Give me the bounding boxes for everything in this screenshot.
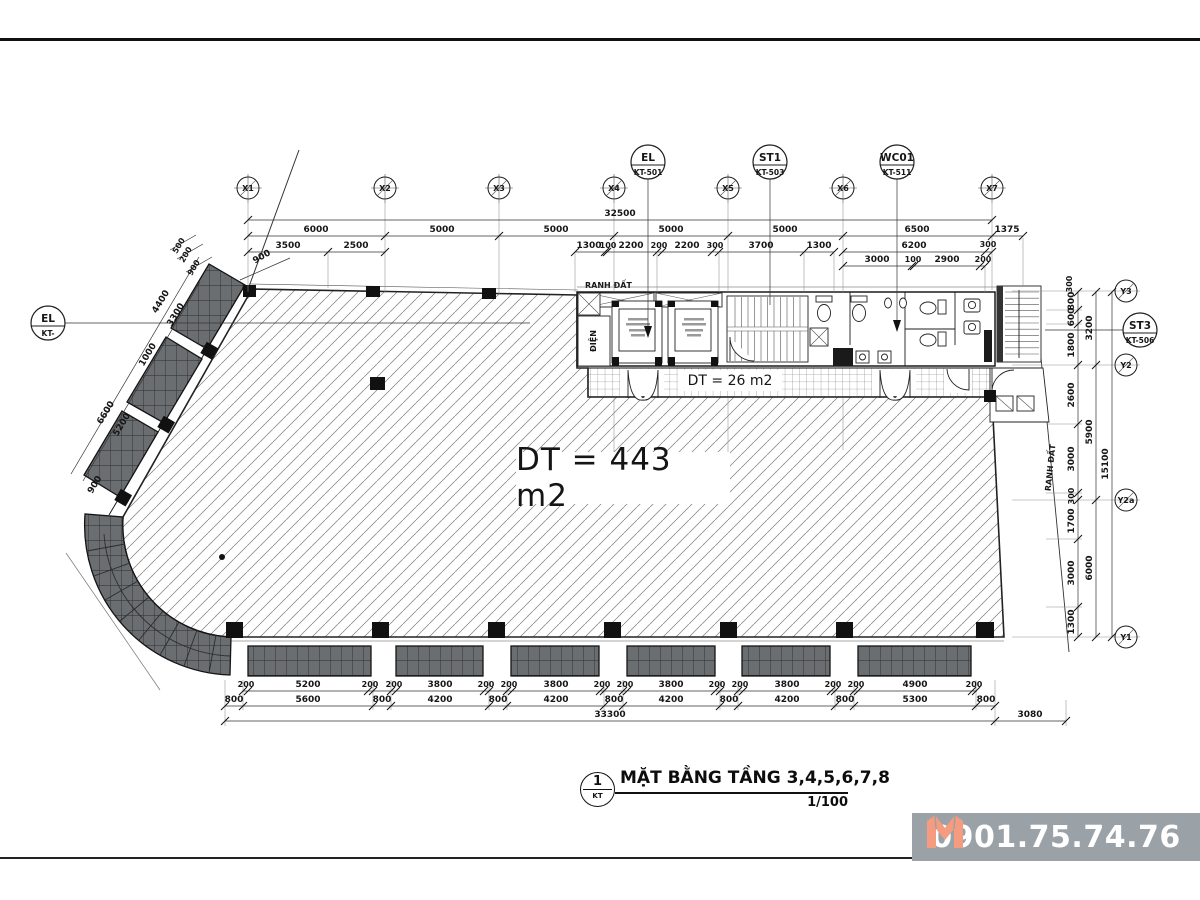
- grid-label: Y1: [1119, 633, 1132, 642]
- grid-bubble-x6: X6: [829, 174, 857, 203]
- dim-text: 800: [225, 695, 244, 705]
- dim-text: 300: [1065, 275, 1074, 292]
- dim-text: 4900: [902, 680, 927, 690]
- drawing-title: MẶT BẰNG TẦNG 3,4,5,6,7,8: [620, 768, 890, 788]
- dim-text: 3500: [275, 241, 300, 251]
- dim-text: 200: [732, 680, 749, 689]
- dim-text: 3700: [748, 241, 773, 251]
- dim-text: 5300: [902, 695, 927, 705]
- dim-text: 3000: [864, 255, 889, 265]
- dim-text: 3800: [427, 680, 452, 690]
- dim-text: 3000: [1067, 560, 1077, 585]
- dim-text: 1700: [1067, 508, 1077, 533]
- dim-text: 3200: [1085, 315, 1095, 340]
- dim-text: 2900: [934, 255, 959, 265]
- stair-st1: [727, 296, 808, 362]
- drawing-number-bubble: 1 KT: [580, 772, 615, 807]
- grid-label: X6: [837, 184, 849, 193]
- dim-text: 5000: [658, 225, 683, 235]
- contact-phone-banner[interactable]: 0901.75.74.76: [912, 813, 1200, 861]
- dim-text: 200: [975, 255, 992, 264]
- title-underline: [615, 792, 848, 794]
- dim-text: 2500: [343, 241, 368, 251]
- grid-bubble-x3: X3: [485, 174, 513, 203]
- dim-text: 5000: [772, 225, 797, 235]
- dim-text: 200: [501, 680, 518, 689]
- dim-text: 2200: [674, 241, 699, 251]
- grid-bubble-x4: X4: [600, 174, 628, 203]
- callout-name: ST1: [759, 152, 781, 164]
- dim-text: 200: [478, 680, 495, 689]
- dim-text: 200: [594, 680, 611, 689]
- dim-text: 3000: [1067, 446, 1077, 471]
- dim-text: 3080: [1017, 710, 1042, 720]
- dim-text: 4200: [427, 695, 452, 705]
- dim-text: 3800: [658, 680, 683, 690]
- dim-text: 6500: [904, 225, 929, 235]
- dim-text: 800: [489, 695, 508, 705]
- electrical-room-label: ĐIỆN: [588, 330, 598, 352]
- floor-plan-page: RANH ĐẤT RANH ĐẤT: [0, 0, 1200, 900]
- dim-text: 5200: [295, 680, 320, 690]
- m-logo-icon: [924, 813, 966, 849]
- dim-text: 200: [709, 680, 726, 689]
- dim-text: 3800: [543, 680, 568, 690]
- dim-text: 1300: [1067, 609, 1077, 634]
- boundary-label-right: RANH ĐẤT: [1041, 443, 1058, 491]
- grid-label: X4: [608, 184, 620, 193]
- grid-label: Y3: [1119, 287, 1131, 296]
- dim-text: 200: [848, 680, 865, 689]
- dim-text: 5900: [1085, 419, 1095, 444]
- dim-text: 200: [651, 241, 668, 250]
- callout-name: EL: [41, 313, 55, 325]
- callout-name: ST3: [1129, 320, 1151, 332]
- dim-text: 3800: [774, 680, 799, 690]
- grid-label: X5: [722, 184, 734, 193]
- dim-text: 1375: [994, 225, 1019, 235]
- dim-text: 300: [707, 241, 724, 250]
- dim-text: 6000: [1085, 555, 1095, 580]
- dim-text: 33300: [594, 710, 625, 720]
- dim-text: 200: [966, 680, 983, 689]
- grid-bubble-x5: X5: [714, 174, 742, 203]
- dim-text: 900: [251, 248, 272, 266]
- dim-text: 5000: [543, 225, 568, 235]
- corridor-area: [588, 368, 992, 400]
- callout-ref: KT-: [42, 329, 55, 338]
- dim-text: 200: [362, 680, 379, 689]
- callout-ref: KT-511: [883, 168, 912, 177]
- dim-text: 200: [238, 680, 255, 689]
- dim-text: 15100: [1101, 448, 1111, 479]
- corridor-area-label: DT = 26 m2: [678, 370, 782, 391]
- dim-text: 4200: [543, 695, 568, 705]
- grid-label: X3: [493, 184, 505, 193]
- dim-text: 4200: [658, 695, 683, 705]
- grid-bubble-x1: X1: [234, 174, 262, 203]
- dim-text: 100: [600, 241, 617, 250]
- bubble-divider: [583, 789, 612, 790]
- electrical-room: ĐIỆN: [578, 316, 610, 366]
- column-dot: [219, 554, 225, 560]
- callout-ref: KT-501: [634, 168, 663, 177]
- corridor-double-door-right: [872, 369, 916, 400]
- grid-bubbles-x: X1 X2 X3 X4 X5 X6 X7: [234, 174, 1006, 294]
- dim-text: 1300: [576, 241, 601, 251]
- dim-text: 800: [720, 695, 739, 705]
- drawing-scale: 1/100: [615, 795, 848, 810]
- boundary-label-top: RANH ĐẤT: [585, 278, 632, 290]
- drawing-discipline: KT: [581, 792, 614, 800]
- grid-label: Y2a: [1117, 496, 1135, 505]
- callout-name: EL: [641, 152, 655, 164]
- drawing-title-block: 1 KT MẶT BẰNG TẦNG 3,4,5,6,7,8 1/100: [575, 768, 865, 813]
- dim-text: 900: [186, 258, 203, 277]
- dimensions-bottom: 200 5200 200 200 3800 200 200 3800 200 2…: [221, 680, 1070, 726]
- grid-label: X7: [986, 184, 998, 193]
- dim-text: 4200: [774, 695, 799, 705]
- dim-text: 1300: [806, 241, 831, 251]
- elevator-2: [668, 301, 718, 366]
- dim-text: 6000: [303, 225, 328, 235]
- dim-text: 1800: [1067, 332, 1077, 357]
- dim-text: 200: [825, 680, 842, 689]
- corridor-double-door-left: [620, 369, 664, 400]
- stair-st3: [997, 286, 1041, 362]
- dim-text: 300: [1067, 487, 1076, 504]
- grid-bubble-y2a: Y2a: [1115, 489, 1137, 511]
- dim-text: 200: [386, 680, 403, 689]
- dim-text: 5000: [429, 225, 454, 235]
- mech-room: [990, 368, 1049, 422]
- dim-text: 2600: [1067, 382, 1077, 407]
- grid-label: X2: [379, 184, 391, 193]
- dim-text: 100: [905, 255, 922, 264]
- grid-label: Y2: [1119, 361, 1131, 370]
- dim-text: 32500: [604, 209, 635, 219]
- dim-text: 6600: [96, 400, 117, 427]
- callout-name: WC01: [880, 152, 914, 164]
- main-area-label: DT = 443 m2: [516, 452, 730, 504]
- callout-st3: ST3 KT-506: [1045, 313, 1157, 347]
- dim-text: 2200: [618, 241, 643, 251]
- grid-bubble-x2: X2: [371, 174, 399, 203]
- dim-text: 800: [373, 695, 392, 705]
- grid-bubble-x7: X7: [978, 174, 1006, 203]
- corridor-door-right-single: [944, 369, 972, 393]
- dim-text: 800: [605, 695, 624, 705]
- dim-text: 5600: [295, 695, 320, 705]
- elevator-1: [612, 301, 662, 366]
- callout-ref: KT-503: [756, 168, 785, 177]
- dim-text: 200: [617, 680, 634, 689]
- dimensions-top: 32500 6000 5000 5000 5000 5000 6500 1375…: [244, 209, 1027, 292]
- dim-text: 800: [836, 695, 855, 705]
- dim-text: 4400: [151, 289, 172, 316]
- dim-text: 300: [980, 240, 997, 249]
- drawing-number: 1: [581, 774, 614, 789]
- dim-text: 600: [1067, 308, 1077, 327]
- dim-text: 800: [977, 695, 996, 705]
- dim-text: 800: [1067, 292, 1077, 311]
- grid-label: X1: [242, 184, 254, 193]
- callout-ref: KT-506: [1126, 336, 1155, 345]
- dim-text: 6200: [901, 241, 926, 251]
